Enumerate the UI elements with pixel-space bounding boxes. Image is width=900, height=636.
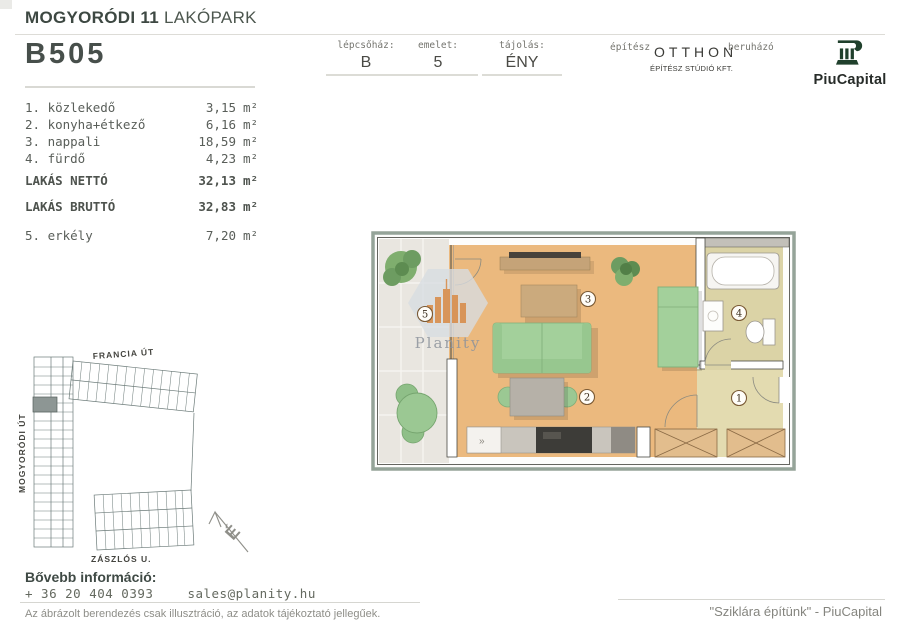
info-col-floor: emelet: 5 xyxy=(398,40,478,76)
developer-name: PiuCapital xyxy=(810,72,890,88)
room-unit: m² xyxy=(236,133,258,150)
room-unit: m² xyxy=(236,150,258,167)
sofa xyxy=(493,323,598,378)
email-link[interactable]: sales@planity.hu xyxy=(187,586,315,601)
tv-console xyxy=(500,252,594,274)
room-name: 3. nappali xyxy=(25,133,184,150)
disclaimer-text: Az ábrázolt berendezés csak illusztráció… xyxy=(25,608,380,620)
floorplan-sheet: MOGYORÓDI 11 LAKÓPARK B505 lépcsőház: B … xyxy=(0,0,900,636)
marker-4: 4 xyxy=(732,306,747,321)
header-divider xyxy=(15,34,885,35)
footer-info-label: Bővebb információ: xyxy=(25,569,156,585)
architect-subtitle: ÉPÍTÉSZ STÚDIÓ KFT. xyxy=(650,64,726,73)
site-map: FRANCIA ÚT MOGYORÓDI ÚT ZÁSZLÓS U. É xyxy=(15,345,270,570)
floorplan-drawing: » P xyxy=(371,231,796,471)
net-area-value: 32,13 xyxy=(184,172,236,189)
street-francia-ut: FRANCIA ÚT xyxy=(92,346,154,361)
room-unit: m² xyxy=(236,198,258,215)
street-zaszlos-u: ZÁSZLÓS U. xyxy=(91,553,152,564)
room-unit: m² xyxy=(236,227,258,244)
unit-id: B505 xyxy=(25,38,106,71)
room-row: 3. nappali 18,59 m² xyxy=(25,133,258,150)
project-title-light: LAKÓPARK xyxy=(164,8,257,27)
info-col-staircase: lépcsőház: B xyxy=(326,40,406,76)
phone-number[interactable]: + 36 20 404 0393 xyxy=(25,586,153,601)
svg-text:5: 5 xyxy=(422,310,428,321)
room-unit: m² xyxy=(236,99,258,116)
room-unit: m² xyxy=(236,116,258,133)
building-outline xyxy=(34,357,197,550)
north-label: É xyxy=(220,521,244,544)
room-name: 4. fürdő xyxy=(25,150,184,167)
room-name: 1. közlekedő xyxy=(25,99,184,116)
washbasin xyxy=(703,301,723,331)
marker-2: 2 xyxy=(580,390,595,405)
staircase-value: B xyxy=(326,54,406,72)
room-area: 6,16 xyxy=(184,116,236,133)
orientation-value: ÉNY xyxy=(482,54,562,72)
unit-id-underline xyxy=(25,86,255,88)
balcony-area: 7,20 xyxy=(184,227,236,244)
svg-text:3: 3 xyxy=(585,295,591,306)
architect-logo: OTTHON ÉPÍTÉSZ STÚDIÓ KFT. xyxy=(650,44,726,73)
orientation-label: tájolás: xyxy=(482,40,562,51)
toilet xyxy=(746,319,775,345)
staircase-label: lépcsőház: xyxy=(326,40,406,51)
coffee-table xyxy=(521,285,581,323)
footer-divider-right xyxy=(618,599,885,600)
dishwasher-glyph: » xyxy=(479,436,485,447)
gross-area-label: LAKÁS BRUTTÓ xyxy=(25,198,184,215)
room-area: 18,59 xyxy=(184,133,236,150)
watermark-text: Planity xyxy=(415,334,482,352)
north-arrow: É xyxy=(209,512,248,552)
room-name: 2. konyha+étkező xyxy=(25,116,184,133)
highlighted-unit xyxy=(33,397,57,412)
developer-logo: PiuCapital xyxy=(810,39,890,88)
info-col-orientation: tájolás: ÉNY xyxy=(482,40,562,76)
marker-3: 3 xyxy=(581,292,596,307)
room-area: 3,15 xyxy=(184,99,236,116)
slogan-text: "Sziklára építünk" - PiuCapital xyxy=(709,604,882,619)
svg-text:1: 1 xyxy=(736,394,742,405)
svg-text:2: 2 xyxy=(584,393,590,404)
balcony-row: 5. erkély 7,20 m² xyxy=(25,227,258,244)
room-row: 1. közlekedő 3,15 m² xyxy=(25,99,258,116)
scan-artifact xyxy=(0,0,12,9)
balcony-label: 5. erkély xyxy=(25,227,184,244)
developer-label: beruházó xyxy=(728,42,772,53)
room-area: 4,23 xyxy=(184,150,236,167)
footer-contacts: + 36 20 404 0393 sales@planity.hu xyxy=(25,586,316,601)
piucapital-column-icon xyxy=(833,39,867,66)
footer-divider-left xyxy=(20,602,420,603)
gross-area-value: 32,83 xyxy=(184,198,236,215)
marker-1: 1 xyxy=(732,391,747,406)
bathtub xyxy=(707,253,779,289)
architect-name: OTTHON xyxy=(650,44,726,60)
gross-area-row: LAKÁS BRUTTÓ 32,83 m² xyxy=(25,198,258,215)
architect-label: építész xyxy=(610,42,648,53)
project-title: MOGYORÓDI 11 LAKÓPARK xyxy=(25,8,257,28)
street-mogyorodi-ut: MOGYORÓDI ÚT xyxy=(16,413,27,493)
project-title-bold: MOGYORÓDI 11 xyxy=(25,8,159,27)
room-row: 4. fürdő 4,23 m² xyxy=(25,150,258,167)
floor-value: 5 xyxy=(398,54,478,72)
room-row: 2. konyha+étkező 6,16 m² xyxy=(25,116,258,133)
marker-5: 5 xyxy=(418,307,433,322)
floor-label: emelet: xyxy=(398,40,478,51)
svg-text:4: 4 xyxy=(736,309,742,320)
bed xyxy=(658,287,702,371)
net-area-label: LAKÁS NETTÓ xyxy=(25,172,184,189)
kitchen-counter: » xyxy=(467,427,635,453)
room-unit: m² xyxy=(236,172,258,189)
dining-set xyxy=(498,378,577,420)
net-area-row: LAKÁS NETTÓ 32,13 m² xyxy=(25,172,258,189)
